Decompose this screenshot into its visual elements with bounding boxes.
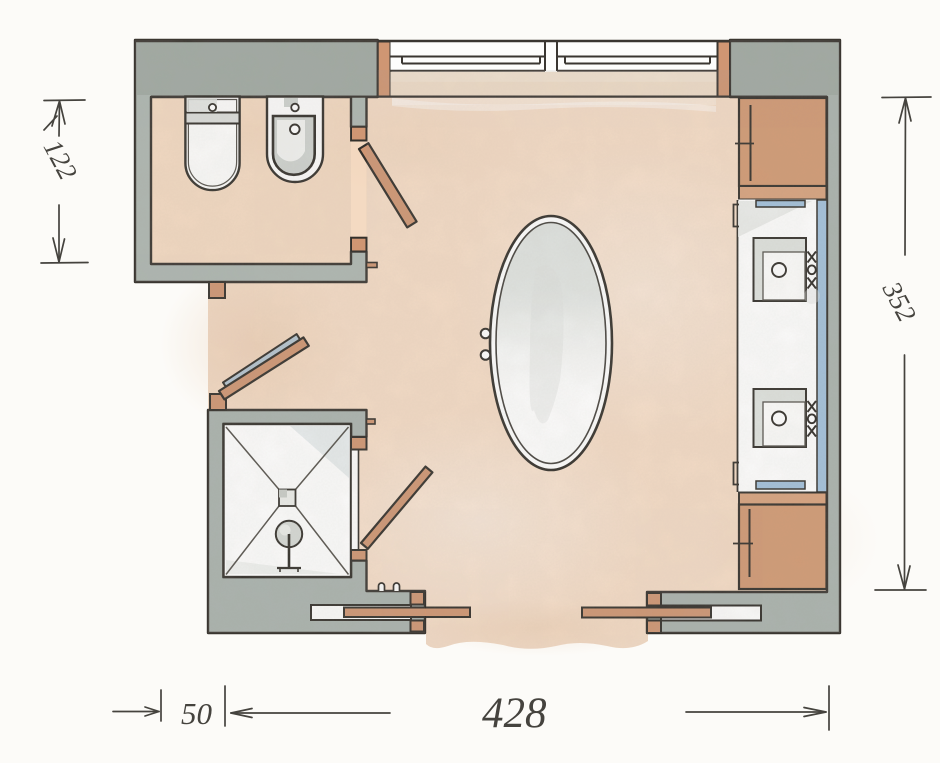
svg-text:50: 50 <box>181 696 213 731</box>
svg-text:428: 428 <box>482 690 547 737</box>
